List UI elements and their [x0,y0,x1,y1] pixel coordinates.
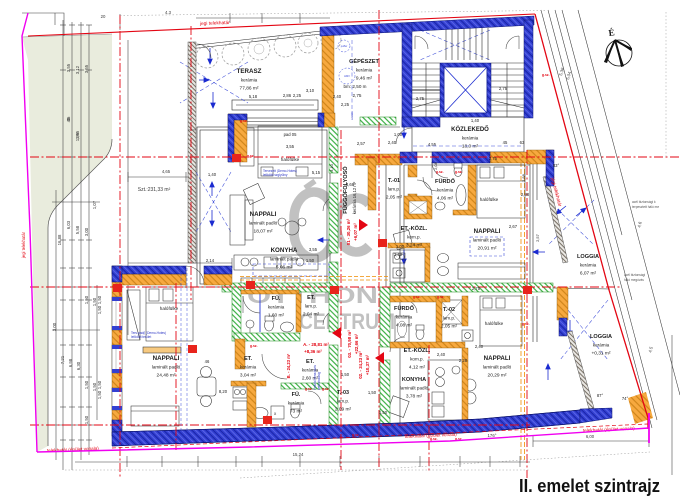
svg-text:lefödött terület: lefödött terület [131,335,151,339]
svg-text:01 - 30,26 m²: 01 - 30,26 m² [346,218,351,245]
svg-text:4,08 m²: 4,08 m² [396,323,413,329]
svg-text:4,65: 4,65 [162,169,171,174]
svg-text:1,95: 1,95 [75,132,80,141]
svg-text:laminált padló: laminált padló [152,365,181,370]
svg-text:halófülke: halófülke [480,197,499,202]
svg-text:ET.: ET. [306,359,315,365]
svg-text:laminált padló: laminált padló [400,386,429,391]
svg-text:4,3: 4,3 [165,10,172,15]
svg-text:2,40: 2,40 [333,94,342,99]
svg-text:kerámia: kerámia [356,68,373,73]
svg-text:3,55: 3,55 [66,63,71,72]
svg-text:2,88: 2,88 [521,192,530,197]
svg-text:3,12: 3,12 [75,65,80,74]
svg-text:1,40: 1,40 [208,172,217,177]
svg-text:45: 45 [66,116,71,121]
svg-text:lam.p.: lam.p. [337,399,350,404]
svg-text:2,08: 2,08 [433,161,438,170]
svg-text:1,40: 1,40 [471,118,480,123]
svg-text:laminált padló: laminált padló [270,257,299,262]
svg-text:1,00: 1,00 [394,132,403,137]
svg-text:LOGGIA: LOGGIA [590,334,612,340]
svg-text:+0,31 m²: +0,31 m² [591,351,610,357]
svg-text:laminált padló: laminált padló [483,365,512,370]
svg-text:2,40: 2,40 [475,344,484,349]
svg-text:83°: 83° [553,163,560,168]
svg-text:2,40: 2,40 [394,252,403,257]
svg-text:laminált padló: laminált padló [473,238,502,243]
svg-text:ET.: ET. [244,356,253,362]
svg-text:2,75: 2,75 [489,156,498,161]
svg-text:20,91 m²: 20,91 m² [478,246,497,252]
svg-text:18,0 m²: 18,0 m² [462,144,479,150]
svg-text:3,10: 3,10 [329,163,334,172]
svg-text:3,68: 3,68 [346,182,355,187]
svg-text:4,12 m²: 4,12 m² [409,365,426,371]
svg-text:63: 63 [520,140,525,145]
svg-text:jegi telekhatár: jegi telekhatár [199,20,230,27]
svg-text:2,75: 2,75 [499,86,508,91]
svg-text:1,50: 1,50 [84,415,89,424]
svg-text:2,75: 2,75 [353,93,362,98]
svg-text:GÉPÉSZET: GÉPÉSZET [349,57,379,65]
svg-text:2,67: 2,67 [509,224,518,229]
svg-text:6,07 m²: 6,07 m² [580,271,597,277]
svg-text:6,00: 6,00 [586,434,595,439]
svg-text:lam.p.: lam.p. [443,316,456,321]
svg-text:FÜRDŐ: FÜRDŐ [394,305,415,312]
svg-text:ET.-KÖZL.: ET.-KÖZL. [404,347,431,354]
svg-text:g.sz.: g.sz. [437,295,445,299]
svg-text:+10,37 m²: +10,37 m² [365,354,370,375]
svg-text:1,50: 1,50 [379,410,388,415]
svg-text:2,75: 2,75 [416,96,425,101]
svg-text:02. - 34,23 m²: 02. - 34,23 m² [358,351,363,379]
svg-text:1,60 m²: 1,60 m² [268,313,285,319]
svg-text:kerámia: kerámia [462,136,479,141]
svg-text:1,50: 1,50 [97,380,102,389]
svg-text:KONYHA: KONYHA [271,247,298,254]
svg-text:20,29 m²: 20,29 m² [488,373,507,379]
svg-text:NAPPALI: NAPPALI [484,355,511,362]
svg-text:3,24 m²: 3,24 m² [406,243,423,249]
svg-text:6,03: 6,03 [66,220,71,229]
svg-text:18,07 m²: 18,07 m² [254,229,273,235]
svg-text:KONYHA: KONYHA [402,377,426,383]
svg-text:acél biztonsági k: acél biztonsági k [632,200,656,204]
svg-text:NAPPALI: NAPPALI [153,355,180,362]
svg-text:2,28: 2,28 [459,358,468,363]
svg-text:TERASZ: TERASZ [237,68,262,75]
svg-text:1,50: 1,50 [84,295,89,304]
svg-text:befontozásig: befontozásig [317,372,321,390]
svg-text:g.sz.: g.sz. [322,387,330,391]
svg-text:laminált padló: laminált padló [249,221,278,226]
svg-text:acél biztonsági: acél biztonsági [624,273,645,277]
svg-text:FÜGGŐFOLYOSÓ: FÜGGŐFOLYOSÓ [341,166,349,214]
svg-text:pad 05: pad 05 [284,132,297,137]
svg-text:Szt.:231,33 m²: Szt.:231,33 m² [138,187,171,193]
svg-text:1,07: 1,07 [92,200,97,209]
svg-text:g.sz.: g.sz. [436,170,444,174]
svg-text:lefödött szglyülny: lefödött szglyülny [263,173,288,177]
svg-text:kerámia: kerámia [288,401,305,406]
svg-text:8,20: 8,20 [219,389,228,394]
svg-text:87°: 87° [597,393,604,398]
svg-text:LOGGIA: LOGGIA [577,254,599,260]
svg-text:3,10: 3,10 [306,88,315,93]
svg-text:kerámia: kerámia [437,188,454,193]
svg-text:2,57: 2,57 [535,233,540,242]
svg-text:77,86 m²: 77,86 m² [240,86,259,92]
svg-text:+22,66 m²: +22,66 m² [354,333,359,354]
svg-text:3,55: 3,55 [286,144,295,149]
svg-text:lam.p.: lam.p. [388,187,401,192]
svg-text:halófülke: halófülke [160,306,179,311]
svg-text:3,00: 3,00 [52,322,57,331]
svg-text:g.sz.: g.sz. [352,433,360,437]
svg-text:2,05 m²: 2,05 m² [441,324,458,330]
svg-text:kerámia: kerámia [580,263,597,268]
svg-text:kerámia: kerámia [593,343,610,348]
svg-text:kerámia: kerámia [241,78,258,83]
svg-text:3,55: 3,55 [84,64,89,73]
svg-text:2,86: 2,86 [283,93,292,98]
svg-text:5,18: 5,18 [249,94,258,99]
svg-text:2,57: 2,57 [357,141,366,146]
svg-text:5,06 m²: 5,06 m² [276,265,293,271]
svg-text:FÜ.: FÜ. [292,391,301,398]
svg-text:2,25: 2,25 [341,102,350,107]
svg-text:g.sz.: g.sz. [413,295,421,299]
svg-text:2,25: 2,25 [293,93,302,98]
svg-text:FÜ.: FÜ. [272,295,281,302]
svg-text:g.sz.: g.sz. [542,73,550,77]
svg-text:+6,07 m²: +6,07 m² [353,223,358,241]
svg-text:II. emelet szintrajz: II. emelet szintrajz [519,476,660,496]
svg-text:6,98: 6,98 [68,358,73,367]
svg-text:2,75: 2,75 [472,286,481,291]
svg-text:5,58: 5,58 [75,225,80,234]
svg-text:03. - 70,98 m²: 03. - 70,98 m² [347,330,352,358]
svg-text:A. - 28,81 m²: A. - 28,81 m² [303,342,329,347]
svg-text:45: 45 [503,140,508,145]
svg-text:73 m²: 73 m² [290,409,303,415]
svg-text:g.sz.: g.sz. [250,344,258,348]
svg-text:NAPPALI: NAPPALI [250,211,277,218]
svg-text:terpesztett háló me: terpesztett háló me [632,205,659,209]
svg-text:g.sz.: g.sz. [522,322,530,326]
svg-text:g.sz.: g.sz. [247,154,255,158]
svg-text:46: 46 [205,359,210,364]
svg-text:KÖZLEKEDŐ: KÖZLEKEDŐ [451,126,489,133]
svg-text:halófülke: halófülke [485,321,504,326]
svg-text:176°: 176° [488,433,497,438]
svg-text:T.-02: T.-02 [443,307,455,313]
svg-text:2,14: 2,14 [206,258,215,263]
svg-text:2,05 m²: 2,05 m² [386,195,403,201]
svg-text:+8,36 m²: +8,36 m² [304,349,322,354]
svg-text:3,78 m²: 3,78 m² [406,394,423,400]
svg-text:HMV: HMV [344,74,350,78]
svg-text:1,50: 1,50 [306,258,315,263]
svg-text:jegi telekhatár: jegi telekhatár [21,231,26,259]
svg-text:bm: 2,50 m: bm: 2,50 m [344,84,367,89]
svg-text:g.sz.: g.sz. [240,119,248,123]
svg-text:kom.p.: kom.p. [407,235,421,240]
svg-text:3,04 m²: 3,04 m² [240,373,257,379]
svg-text:puffer: puffer [341,44,348,48]
svg-text:T.-01: T.-01 [388,178,400,184]
svg-text:ET.-KÖZL.: ET.-KÖZL. [401,225,428,232]
svg-text:1,50: 1,50 [97,390,102,399]
svg-text:kerámia: kerámia [240,365,257,370]
svg-text:2,40: 2,40 [388,140,397,145]
svg-text:4,06 m²: 4,06 m² [437,196,454,202]
svg-text:2,09 m²: 2,09 m² [335,407,352,413]
svg-text:ET.: ET. [307,295,315,301]
svg-text:9,46 m²: 9,46 m² [356,76,373,82]
svg-text:g.sz.: g.sz. [455,170,463,174]
svg-text:lam.p.: lam.p. [305,304,318,309]
svg-text:3,00: 3,00 [84,227,89,236]
svg-text:6,30: 6,30 [76,361,81,370]
svg-text:halófülke: halófülke [281,157,300,162]
svg-text:NAPPALI: NAPPALI [474,228,501,235]
svg-text:24,48 m²: 24,48 m² [157,373,176,379]
svg-text:2,40: 2,40 [437,352,446,357]
svg-text:kom.p.: kom.p. [410,357,424,362]
svg-text:1,50: 1,50 [84,380,89,389]
svg-text:B. - 24,23 m²: B. - 24,23 m² [286,353,291,378]
svg-text:g.sz.: g.sz. [305,387,313,391]
svg-text:3,55: 3,55 [309,247,318,252]
svg-text:15,24: 15,24 [293,452,304,457]
svg-text:2,04 m²: 2,04 m² [303,312,320,318]
svg-text:1,50: 1,50 [97,295,102,304]
svg-text:1,00: 1,00 [396,244,405,249]
svg-text:16,88: 16,88 [57,234,62,245]
svg-text:1,50: 1,50 [97,305,102,314]
svg-text:7,21: 7,21 [60,355,65,364]
svg-text:FÜRDŐ: FÜRDŐ [435,178,456,185]
svg-text:20: 20 [101,14,106,19]
svg-text:háló megóvás: háló megóvás [624,278,644,282]
svg-text:5,15: 5,15 [312,170,321,175]
svg-text:kerámia: kerámia [396,315,413,320]
svg-text:kerámia: kerámia [268,305,285,310]
svg-text:74°: 74° [622,396,629,401]
svg-text:T.-03: T.-03 [337,390,349,396]
svg-text:2,88: 2,88 [521,173,526,182]
svg-text:1,50: 1,50 [341,372,350,377]
svg-text:1,50: 1,50 [368,390,377,395]
